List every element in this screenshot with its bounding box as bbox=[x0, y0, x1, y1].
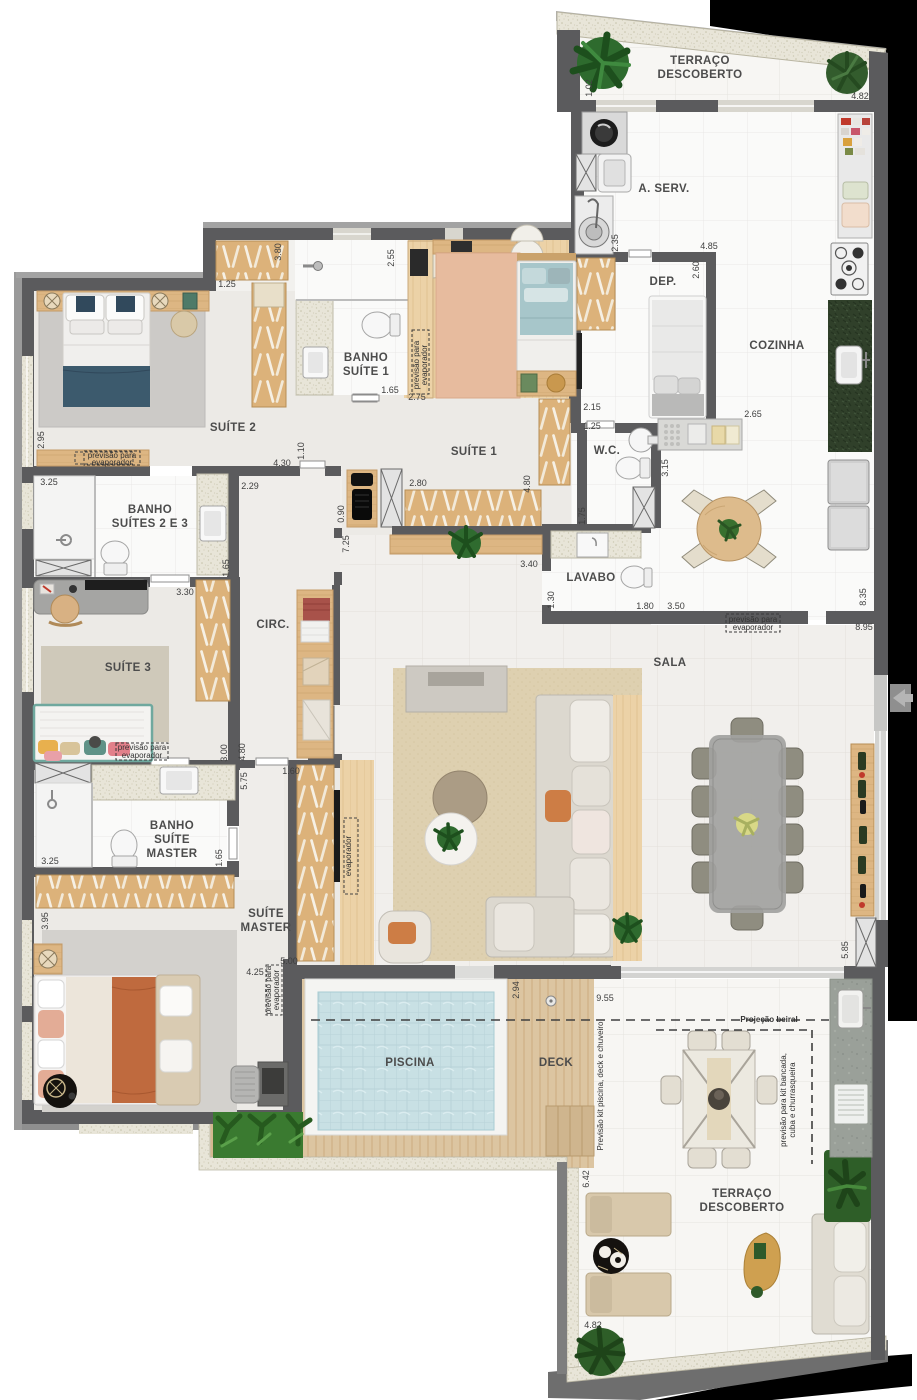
svg-text:6.42: 6.42 bbox=[581, 1170, 591, 1188]
svg-text:SUÍTE 1: SUÍTE 1 bbox=[343, 365, 389, 378]
svg-text:4.30: 4.30 bbox=[273, 458, 291, 468]
svg-text:evaporador: evaporador bbox=[122, 751, 163, 760]
svg-text:1.65: 1.65 bbox=[381, 385, 399, 395]
svg-text:1.25: 1.25 bbox=[583, 421, 601, 431]
svg-text:BANHO: BANHO bbox=[150, 820, 194, 832]
svg-text:8.35: 8.35 bbox=[858, 588, 868, 606]
svg-text:2.95: 2.95 bbox=[36, 431, 46, 449]
svg-text:3.30: 3.30 bbox=[176, 587, 194, 597]
svg-text:3.15: 3.15 bbox=[660, 459, 670, 477]
svg-text:SUÍTE: SUÍTE bbox=[248, 907, 284, 920]
svg-text:evaporador: evaporador bbox=[344, 835, 353, 876]
svg-text:1.65: 1.65 bbox=[214, 849, 224, 867]
svg-text:DECK: DECK bbox=[539, 1057, 573, 1069]
svg-text:5.85: 5.85 bbox=[840, 941, 850, 959]
svg-text:2.55: 2.55 bbox=[386, 249, 396, 267]
svg-text:TERRAÇO: TERRAÇO bbox=[670, 55, 730, 67]
svg-text:4.80: 4.80 bbox=[522, 475, 532, 493]
svg-text:0.90: 0.90 bbox=[336, 505, 346, 523]
svg-text:COZINHA: COZINHA bbox=[749, 340, 804, 352]
svg-text:DEP.: DEP. bbox=[650, 276, 677, 288]
svg-text:SUÍTE 2: SUÍTE 2 bbox=[210, 421, 256, 434]
svg-text:A. SERV.: A. SERV. bbox=[638, 183, 689, 195]
svg-text:2.80: 2.80 bbox=[409, 478, 427, 488]
svg-text:evaporador: evaporador bbox=[733, 623, 774, 632]
svg-text:2.65: 2.65 bbox=[744, 409, 762, 419]
svg-text:2.94: 2.94 bbox=[511, 981, 521, 999]
svg-text:2.75: 2.75 bbox=[408, 392, 426, 402]
svg-text:SALA: SALA bbox=[654, 657, 687, 669]
svg-text:1.60: 1.60 bbox=[282, 766, 300, 776]
svg-text:3.00: 3.00 bbox=[219, 744, 229, 762]
svg-text:3.50: 3.50 bbox=[667, 601, 685, 611]
svg-text:2.29: 2.29 bbox=[241, 481, 259, 491]
svg-text:4.25: 4.25 bbox=[246, 967, 264, 977]
svg-text:CIRC.: CIRC. bbox=[256, 619, 289, 631]
svg-text:7.25: 7.25 bbox=[341, 535, 351, 553]
svg-text:3.25: 3.25 bbox=[40, 477, 58, 487]
svg-text:1.30: 1.30 bbox=[546, 591, 556, 609]
svg-text:SUÍTE 3: SUÍTE 3 bbox=[105, 661, 151, 674]
svg-text:evaporador: evaporador bbox=[272, 969, 281, 1010]
svg-text:1.75: 1.75 bbox=[577, 507, 587, 525]
svg-text:3.95: 3.95 bbox=[40, 912, 50, 930]
svg-text:PISCINA: PISCINA bbox=[385, 1057, 434, 1069]
svg-text:previsão para kit bancada,: previsão para kit bancada, bbox=[779, 1053, 788, 1147]
svg-text:1.10: 1.10 bbox=[296, 442, 306, 460]
svg-text:1.80: 1.80 bbox=[636, 601, 654, 611]
svg-text:5.00: 5.00 bbox=[280, 956, 298, 966]
svg-text:3.25: 3.25 bbox=[41, 856, 59, 866]
svg-text:2.60: 2.60 bbox=[691, 261, 701, 279]
svg-text:8.95: 8.95 bbox=[855, 622, 873, 632]
svg-text:4.85: 4.85 bbox=[700, 241, 718, 251]
svg-text:3.80: 3.80 bbox=[273, 243, 283, 261]
svg-text:4.82: 4.82 bbox=[584, 1320, 602, 1330]
svg-text:4.80: 4.80 bbox=[237, 743, 247, 761]
svg-text:cuba e churrasqueira: cuba e churrasqueira bbox=[788, 1062, 797, 1138]
svg-text:DESCOBERTO: DESCOBERTO bbox=[700, 1202, 785, 1214]
svg-text:MASTER: MASTER bbox=[241, 922, 292, 934]
svg-text:SUÍTES 2 E 3: SUÍTES 2 E 3 bbox=[112, 517, 188, 530]
svg-text:1.02: 1.02 bbox=[584, 79, 594, 97]
svg-text:5.75: 5.75 bbox=[239, 772, 249, 790]
svg-text:Previsão kit piscina, deck e c: Previsão kit piscina, deck e chuveiro bbox=[596, 1021, 605, 1151]
svg-text:9.55: 9.55 bbox=[596, 993, 614, 1003]
svg-text:3.40: 3.40 bbox=[520, 559, 538, 569]
svg-text:4.82: 4.82 bbox=[851, 91, 869, 101]
svg-text:evaporador: evaporador bbox=[92, 458, 133, 467]
svg-text:DESCOBERTO: DESCOBERTO bbox=[658, 69, 743, 81]
svg-text:2.35: 2.35 bbox=[610, 234, 620, 252]
svg-text:TERRAÇO: TERRAÇO bbox=[712, 1188, 772, 1200]
svg-text:BANHO: BANHO bbox=[344, 352, 388, 364]
svg-text:SUÍTE 1: SUÍTE 1 bbox=[451, 445, 497, 458]
svg-text:MASTER: MASTER bbox=[147, 848, 198, 860]
svg-text:evaporador: evaporador bbox=[420, 344, 429, 385]
svg-text:1.65: 1.65 bbox=[221, 559, 231, 577]
svg-text:W.C.: W.C. bbox=[594, 445, 621, 457]
svg-text:LAVABO: LAVABO bbox=[566, 572, 615, 584]
svg-text:2.15: 2.15 bbox=[583, 402, 601, 412]
svg-text:SUÍTE: SUÍTE bbox=[154, 833, 190, 846]
svg-text:Projeção beiral: Projeção beiral bbox=[740, 1015, 797, 1024]
svg-text:1.25: 1.25 bbox=[218, 279, 236, 289]
svg-text:BANHO: BANHO bbox=[128, 504, 172, 516]
